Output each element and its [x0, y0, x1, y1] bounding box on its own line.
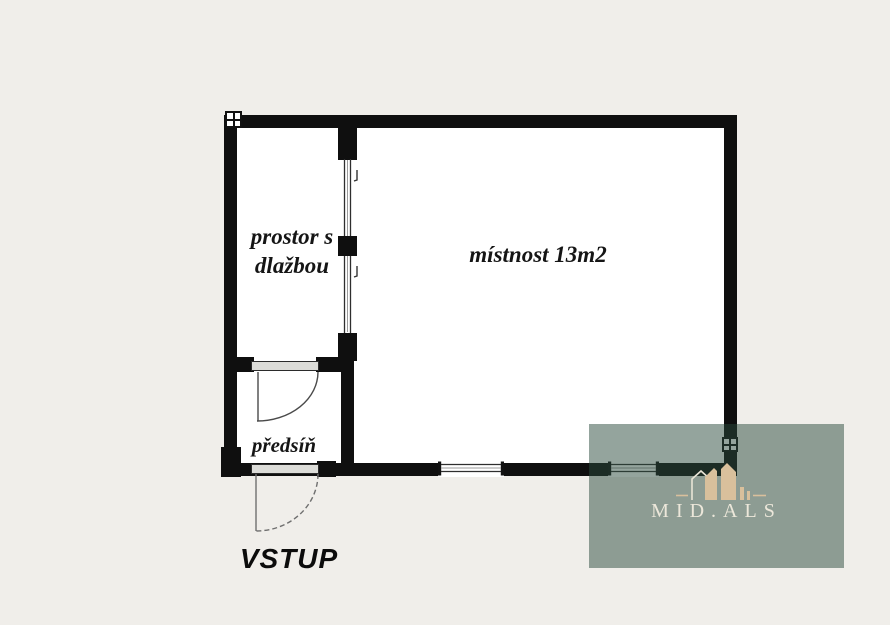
- partition-glass-2: [340, 256, 355, 333]
- room-label-line: dlažbou: [251, 251, 333, 280]
- partition-top-segment: [338, 126, 357, 160]
- partition-bottom-jamb: [338, 333, 357, 361]
- watermark-brand: MID.ALS: [589, 500, 844, 523]
- wall-left: [224, 115, 237, 476]
- room-label-line: prostor s: [251, 222, 333, 251]
- room-label-vestibule: předsíň: [252, 433, 316, 458]
- partition-glass-1: [340, 160, 355, 236]
- plan-interior: [224, 115, 737, 476]
- entrance-right-jamb: [317, 461, 336, 477]
- vestibule-door-threshold: [251, 361, 319, 371]
- floorplan-canvas: prostor s dlažbou místnost 13m2 předsíň …: [0, 0, 890, 625]
- watermark-overlay: MID.ALS: [589, 424, 844, 568]
- room-label-main-room: místnost 13m2: [469, 240, 606, 269]
- corner-vent-icon: [225, 111, 242, 128]
- corner-jamb-bottom-left: [221, 447, 241, 477]
- room-label-tiled-space: prostor s dlažbou: [251, 222, 333, 280]
- partition-mid-segment: [338, 236, 357, 256]
- window-gap-1: [438, 461, 504, 477]
- entrance-door-threshold: [251, 464, 319, 474]
- wall-divider-left: [224, 357, 254, 372]
- entrance-door-swing: [256, 474, 318, 531]
- entrance-label: VSTUP: [240, 543, 338, 575]
- wall-right: [724, 115, 737, 476]
- wall-top: [224, 115, 737, 128]
